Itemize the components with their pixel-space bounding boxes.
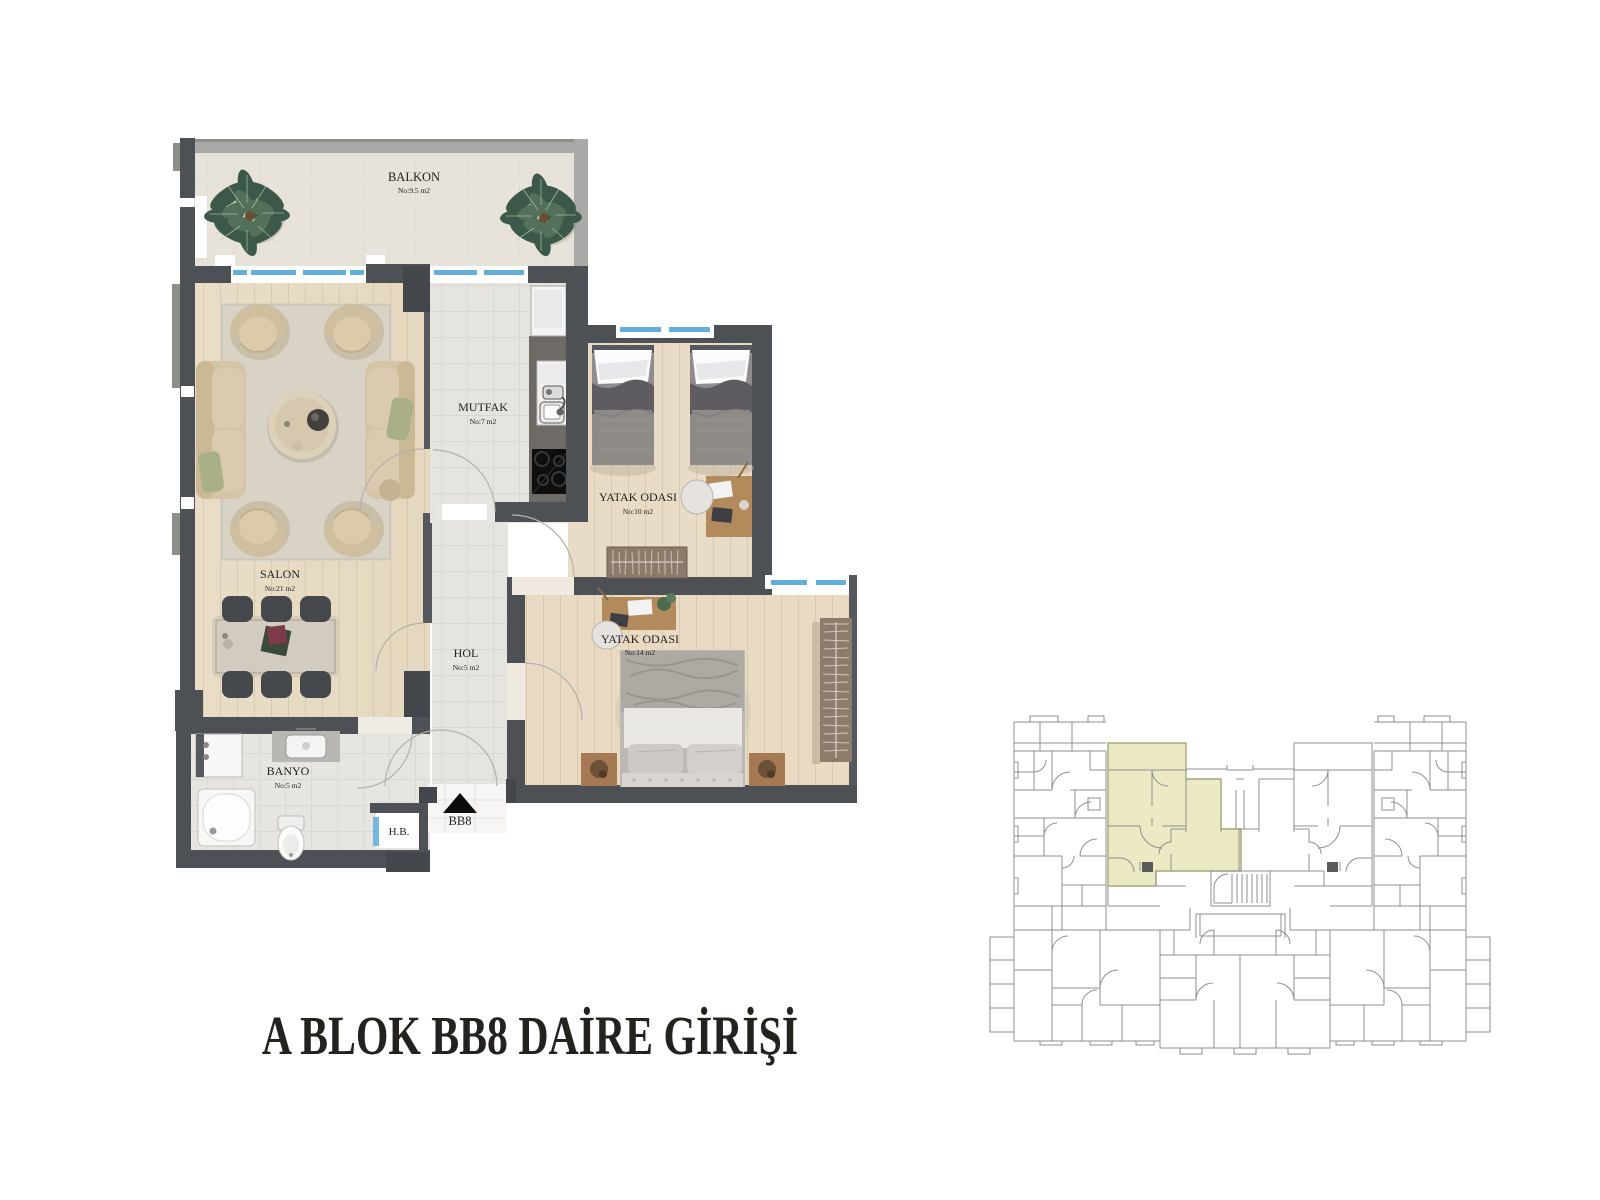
- svg-text:No:10 m2: No:10 m2: [623, 507, 653, 516]
- svg-text:SALON: SALON: [260, 567, 300, 581]
- svg-text:No:9.5 m2: No:9.5 m2: [398, 186, 430, 195]
- svg-text:MUTFAK: MUTFAK: [458, 400, 508, 414]
- svg-text:No:5 m2: No:5 m2: [275, 781, 302, 790]
- svg-text:BB8: BB8: [449, 814, 472, 828]
- svg-text:YATAK ODASI: YATAK ODASI: [599, 490, 677, 504]
- svg-text:No:14 m2: No:14 m2: [625, 648, 655, 657]
- svg-text:H.B.: H.B.: [389, 826, 410, 838]
- svg-text:HOL: HOL: [454, 646, 479, 660]
- svg-text:No:5 m2: No:5 m2: [453, 663, 480, 672]
- svg-text:BANYO: BANYO: [267, 764, 310, 778]
- svg-text:BALKON: BALKON: [388, 170, 440, 184]
- svg-text:A BLOK BB8 DAİRE GİRİŞİ: A BLOK BB8 DAİRE GİRİŞİ: [262, 1004, 798, 1066]
- svg-text:No:21 m2: No:21 m2: [265, 584, 295, 593]
- svg-text:No:7 m2: No:7 m2: [470, 417, 497, 426]
- svg-text:YATAK ODASI: YATAK ODASI: [601, 632, 679, 646]
